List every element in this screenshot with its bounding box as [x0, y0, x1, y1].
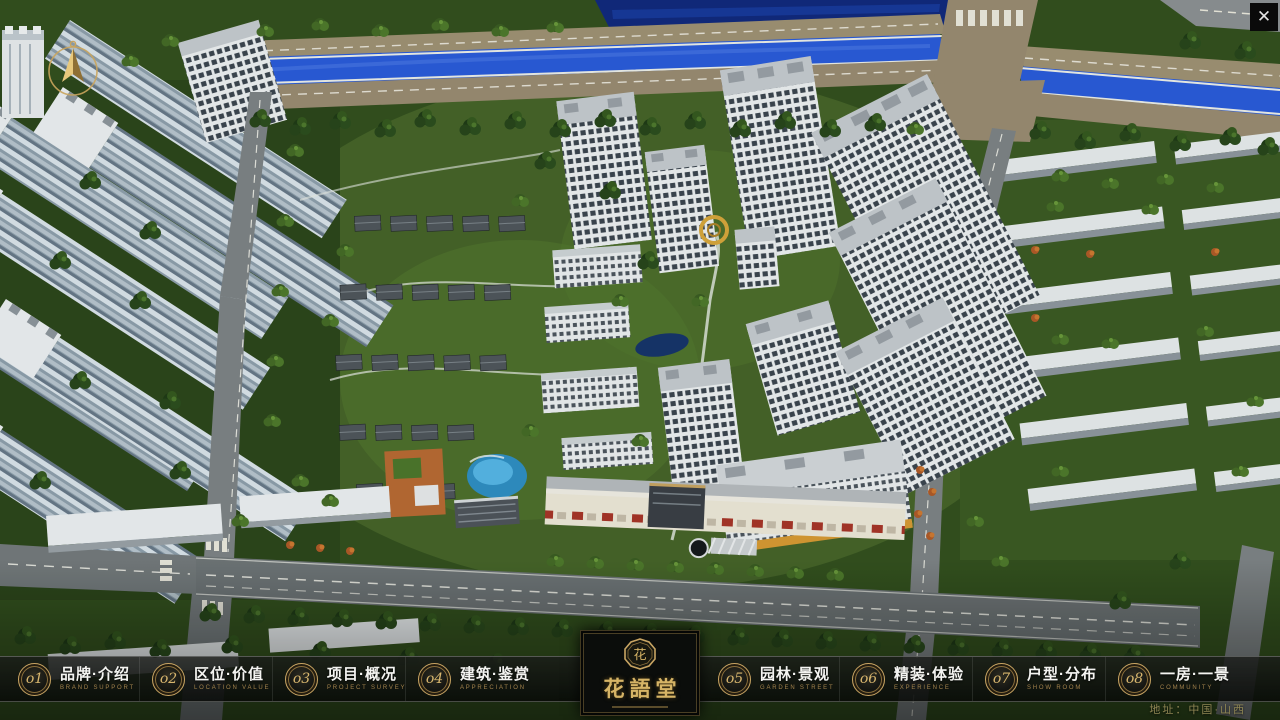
menu-item-floorplans[interactable]: o7 户型·分布 SHOW ROOM: [972, 657, 1105, 701]
project-logo-panel[interactable]: 花 花語堂: [580, 630, 700, 716]
menu-number-badge: o7: [985, 663, 1018, 696]
menu-number-badge: o6: [852, 663, 885, 696]
menu-item-location[interactable]: o2 区位·价值 LOCATION VALUE: [139, 657, 272, 701]
menu-label-zh: 一房·一景: [1160, 667, 1230, 682]
menu-label-en: BRAND SUPPORT: [60, 685, 135, 691]
menu-label-en: LOCATION VALUE: [194, 685, 270, 691]
menu-label-en: COMMUNITY: [1160, 685, 1230, 691]
menu-label-zh: 品牌·介绍: [60, 667, 135, 682]
menu-group-left: o1 品牌·介绍 BRAND SUPPORT o2 区位·价值 LOCATION…: [6, 657, 538, 701]
menu-item-architecture[interactable]: o4 建筑·鉴赏 APPRECIATION: [405, 657, 538, 701]
menu-label-zh: 园林·景观: [760, 667, 834, 682]
menu-label-en: GARDEN STREET: [760, 685, 834, 691]
site-plan-render[interactable]: [0, 0, 1280, 720]
project-logo-name: 花語堂: [599, 673, 682, 703]
project-address: 地址：中国·山西: [1149, 701, 1246, 717]
project-emblem-icon: 花: [624, 638, 656, 670]
menu-label-zh: 精装·体验: [894, 667, 964, 682]
menu-label-zh: 项目·概况: [327, 667, 406, 682]
menu-number-badge: o3: [285, 663, 318, 696]
menu-label-en: PROJECT SURVEY: [327, 685, 406, 691]
menu-number-badge: o5: [718, 663, 751, 696]
menu-label-en: SHOW ROOM: [1027, 685, 1097, 691]
menu-label-en: EXPERIENCE: [894, 685, 964, 691]
menu-item-project[interactable]: o3 项目·概况 PROJECT SURVEY: [272, 657, 405, 701]
menu-item-brand[interactable]: o1 品牌·介绍 BRAND SUPPORT: [6, 657, 139, 701]
menu-number-badge: o2: [152, 663, 185, 696]
menu-number-badge: o4: [418, 663, 451, 696]
logo-subtitle-rule: [612, 706, 668, 708]
menu-group-right: o5 园林·景观 GARDEN STREET o6 精装·体验 EXPERIEN…: [706, 657, 1238, 701]
app-window: ✕ o1 品牌·介绍 BRAND SUPPORT o2 区位·价值 LOCATI…: [0, 0, 1280, 720]
compass-icon: [40, 34, 106, 104]
menu-item-views[interactable]: o8 一房·一景 COMMUNITY: [1105, 657, 1238, 701]
menu-label-zh: 区位·价值: [194, 667, 270, 682]
menu-label-zh: 建筑·鉴赏: [460, 667, 530, 682]
menu-number-badge: o1: [18, 663, 51, 696]
close-button[interactable]: ✕: [1250, 3, 1278, 31]
menu-label-zh: 户型·分布: [1027, 667, 1097, 682]
menu-label-en: APPRECIATION: [460, 685, 530, 691]
menu-item-interior[interactable]: o6 精装·体验 EXPERIENCE: [839, 657, 972, 701]
svg-text:花: 花: [633, 647, 646, 663]
menu-number-badge: o8: [1118, 663, 1151, 696]
menu-item-garden[interactable]: o5 园林·景观 GARDEN STREET: [706, 657, 839, 701]
